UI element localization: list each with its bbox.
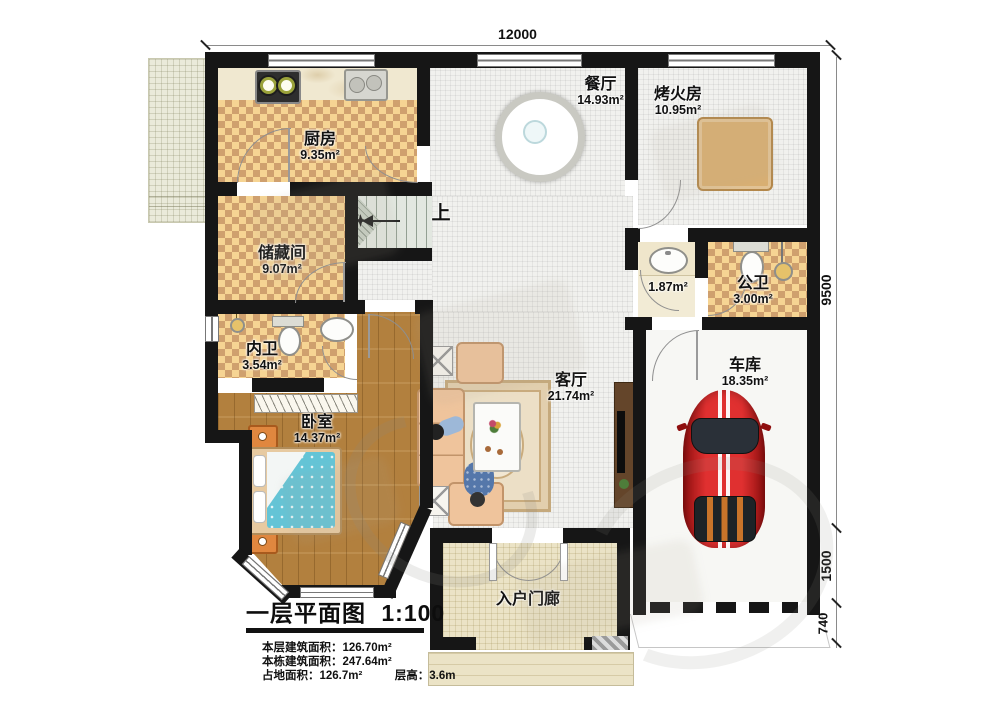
bed [248,447,342,535]
entrance-door-leaf [560,543,568,581]
wall [345,248,432,261]
terrace-floor [148,58,208,223]
wall [617,543,630,650]
knob [258,432,267,441]
wall [695,242,708,278]
storage-label: 储藏间9.07m² [232,245,332,276]
wall [625,242,638,270]
fire-room-table [697,117,773,191]
entrance-door-leaf [489,543,497,581]
porch-label: 入户门廊 [468,591,588,609]
plan-scale: 1:100 [381,600,445,626]
wardrobe [254,394,358,413]
car [683,390,765,548]
floor-plan: 厨房9.35m² 餐厅14.93m² 烤火房10.95m² 储藏间9.07m² … [0,0,1000,706]
stat-land-area: 占地面积：126.7m² 层高：3.6m [262,667,455,683]
living-label: 客厅21.74m² [521,372,621,403]
dimension-line-right [836,57,837,648]
wash-area-label: 1.87m² [628,281,708,295]
private-wc-window [205,316,219,342]
porch-ramp-mark [592,636,628,650]
title-underline [246,628,424,633]
knob [258,537,267,546]
wall [430,528,492,543]
wall [239,430,252,555]
kitchen-window [268,54,375,67]
storage-door-leaf [343,262,345,302]
stat-value: 3.6m [429,670,455,682]
coffee-table [473,402,521,472]
wall [688,228,820,242]
wall [430,637,476,650]
garage-door-dashed [650,602,798,613]
dining-window [477,54,582,67]
public-wc-label: 公卫3.00m² [703,275,803,306]
wall [290,182,432,196]
wall [563,528,630,543]
plant [619,479,629,489]
wall [807,52,820,615]
car-windshield [691,418,759,454]
corridor-floor [357,261,432,300]
private-wc-basin [320,317,354,342]
plan-title: 一层平面图 1:100 [246,594,445,628]
wall [625,317,652,330]
wall [420,312,433,508]
dimension-right-bottom-value: 740 [816,594,831,654]
dimension-right-top-value: 9500 [818,260,834,320]
car-rear-window [694,496,756,542]
cup [485,446,491,452]
kitchen-label: 厨房9.35m² [270,131,370,162]
tv [617,411,625,473]
stairs-arrow-line [372,220,400,222]
fire-room-window [668,54,775,67]
flower-vase [487,418,503,434]
bedroom-door-leaf [368,314,370,358]
private-wc-light [230,318,245,333]
wall [205,182,237,196]
garage-label: 车库18.35m² [695,357,795,388]
stat-value: 126.7m² [320,670,363,682]
stat-label: 层高： [395,670,430,682]
burner-icon [260,77,277,94]
dimension-line-top [205,45,830,46]
cup [497,449,503,455]
wall [252,378,324,392]
wall [417,68,430,146]
stairs-up-label: 上 [428,204,454,225]
fire-room-label: 烤火房10.95m² [628,86,728,117]
basin [349,77,365,93]
stat-label: 占地面积： [262,670,320,682]
private-wc-label: 内卫3.54m² [212,341,312,372]
terrace-step-line [149,196,205,197]
armchair [456,342,504,384]
wall [625,228,640,242]
basin [366,75,382,91]
wall [633,330,646,615]
hall-floor [432,196,633,312]
table-center [523,120,547,144]
dimension-right-mid-value: 1500 [818,536,834,596]
kitchen-sink [344,69,388,101]
person-head [470,492,485,507]
dimension-top-value: 12000 [205,26,830,42]
burner-icon [278,77,295,94]
wall [702,317,820,330]
plan-title-text: 一层平面图 [246,600,366,626]
porch-steps [428,652,634,686]
pillow [253,491,266,523]
stove [255,70,301,104]
driveway-outline [630,614,830,648]
faucet [665,251,671,255]
bedroom-label: 卧室14.37m² [267,414,367,445]
pillow [253,455,266,487]
terrace-step-line [149,206,205,207]
